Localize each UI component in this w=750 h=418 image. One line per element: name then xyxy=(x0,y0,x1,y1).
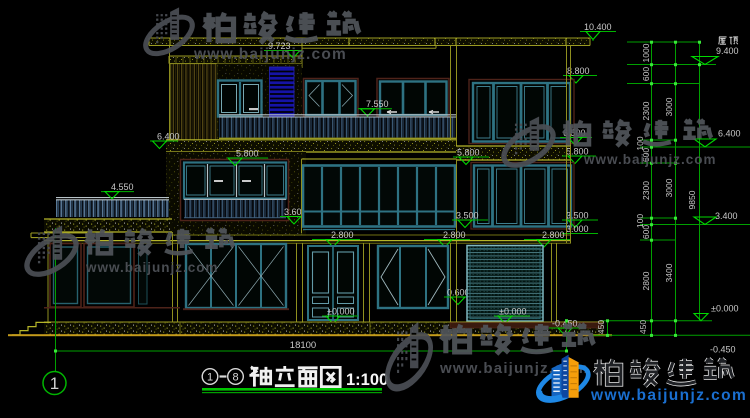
svg-text:±0.000: ±0.000 xyxy=(711,304,738,314)
svg-text:18100: 18100 xyxy=(290,340,316,351)
svg-text:3400: 3400 xyxy=(664,263,674,282)
svg-text:±0.000: ±0.000 xyxy=(327,307,354,317)
svg-text:600: 600 xyxy=(641,67,651,81)
svg-text:2800: 2800 xyxy=(641,271,651,290)
svg-text:6.400: 6.400 xyxy=(157,132,180,142)
svg-text:7.550: 7.550 xyxy=(366,99,389,109)
svg-text:3.500: 3.500 xyxy=(566,211,589,221)
svg-text:2300: 2300 xyxy=(641,181,651,200)
svg-text:3000: 3000 xyxy=(664,178,674,197)
svg-text:600: 600 xyxy=(641,225,651,239)
svg-text:1: 1 xyxy=(50,374,59,393)
svg-text:-0.450: -0.450 xyxy=(710,345,736,355)
svg-text:3.400: 3.400 xyxy=(715,211,738,221)
svg-text:6.400: 6.400 xyxy=(718,129,741,139)
svg-text:www.baijunjz.com: www.baijunjz.com xyxy=(583,152,717,167)
svg-text:9850: 9850 xyxy=(687,190,697,209)
svg-text:www.baijunjz.com: www.baijunjz.com xyxy=(590,387,747,404)
svg-text:1000: 1000 xyxy=(641,43,651,62)
svg-text:1: 1 xyxy=(207,372,213,384)
svg-text:3.000: 3.000 xyxy=(566,224,589,234)
svg-text:10.400: 10.400 xyxy=(584,22,612,32)
svg-text:2.800: 2.800 xyxy=(542,230,565,240)
svg-text:450: 450 xyxy=(596,320,606,334)
svg-text:4.550: 4.550 xyxy=(111,182,134,192)
svg-text:5.800: 5.800 xyxy=(236,149,259,159)
svg-text:www.baijunjz.com: www.baijunjz.com xyxy=(193,46,347,63)
svg-text:5.800: 5.800 xyxy=(457,148,480,158)
svg-text:±0.000: ±0.000 xyxy=(499,307,526,317)
svg-text:www.baijunjz.com: www.baijunjz.com xyxy=(85,260,219,275)
svg-text:2.800: 2.800 xyxy=(331,230,354,240)
svg-text:2300: 2300 xyxy=(641,101,651,120)
svg-text:3000: 3000 xyxy=(664,97,674,116)
svg-text:3.500: 3.500 xyxy=(456,211,479,221)
svg-text:9.400: 9.400 xyxy=(716,46,739,56)
svg-text:2.800: 2.800 xyxy=(443,230,466,240)
svg-text:1:100: 1:100 xyxy=(346,371,388,389)
svg-text:450: 450 xyxy=(638,320,648,334)
svg-text:8: 8 xyxy=(232,372,238,384)
